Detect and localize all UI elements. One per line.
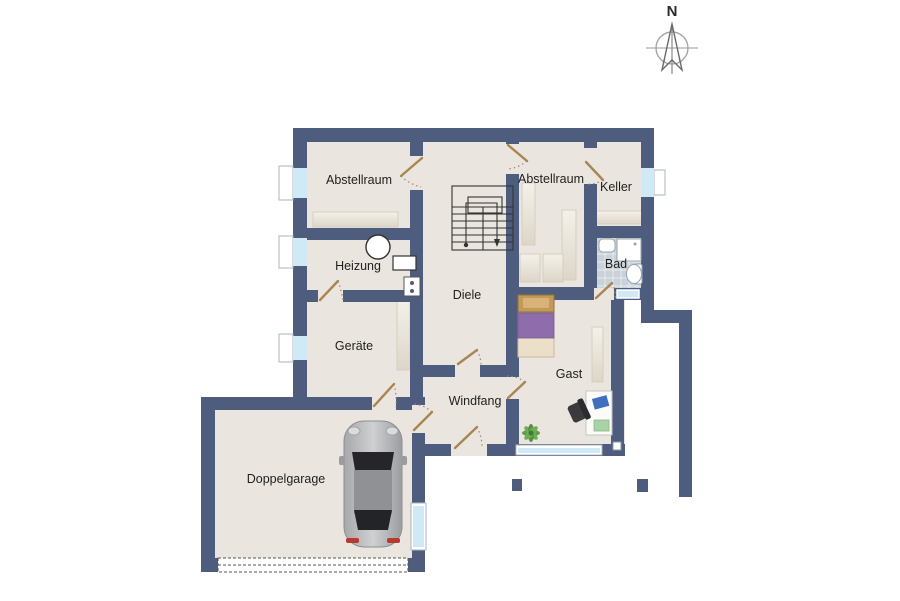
window-gast xyxy=(516,445,602,455)
headlight-left xyxy=(348,427,360,435)
window-abstellraum1 xyxy=(279,166,307,200)
shelf-abstellraum2-left xyxy=(522,183,535,245)
toilet-icon xyxy=(627,264,643,284)
radiator-icon xyxy=(393,256,416,270)
label-windfang: Windfang xyxy=(449,394,502,408)
label-abstellraum1: Abstellraum xyxy=(326,173,392,187)
shelf-abstellraum2-low-a xyxy=(520,254,540,282)
floorplan-page: N Abstellraum Abstellraum Keller Heizung… xyxy=(0,0,900,601)
car-icon xyxy=(339,421,407,547)
window-keller xyxy=(641,168,665,197)
utility-sink-icon xyxy=(404,277,420,296)
porch-pillars xyxy=(512,479,648,492)
corner-marker xyxy=(613,442,621,450)
headlight-right xyxy=(386,427,398,435)
label-heizung: Heizung xyxy=(335,259,381,273)
window-bad xyxy=(617,290,639,298)
label-keller: Keller xyxy=(600,180,632,194)
wall-abst1-bottom xyxy=(293,228,423,240)
shelf-gast xyxy=(592,327,603,382)
wall-top xyxy=(294,128,651,142)
wall-garage-left xyxy=(201,397,215,572)
wall-keller-bottom xyxy=(584,226,651,238)
wall-terrace-right xyxy=(679,310,692,497)
shelf-abstellraum2-low-b xyxy=(543,254,563,282)
north-label: N xyxy=(667,3,678,20)
taillight-left xyxy=(346,538,359,543)
floor-areas xyxy=(208,135,645,565)
wall-gast-right xyxy=(611,293,624,456)
shelf-abstellraum2-right xyxy=(562,210,576,280)
car-roof xyxy=(354,470,392,514)
compass-rose: N xyxy=(646,3,698,74)
boiler-icon xyxy=(366,235,390,259)
label-abstellraum2: Abstellraum xyxy=(518,172,584,186)
shelf-abstellraum1 xyxy=(313,212,398,227)
garage-door xyxy=(218,558,408,572)
mirror-left xyxy=(339,456,345,465)
taillight-right xyxy=(387,538,400,543)
mirror-right xyxy=(401,456,407,465)
pillar-right xyxy=(637,479,648,492)
label-doppelgarage: Doppelgarage xyxy=(247,472,326,486)
desk-pad xyxy=(594,420,609,431)
shelf-geraete xyxy=(397,300,410,370)
window-geraete xyxy=(279,334,307,362)
window-heizung xyxy=(279,236,307,268)
window-garage-side xyxy=(411,503,426,550)
label-diele: Diele xyxy=(453,288,482,302)
sink-icon xyxy=(599,239,615,252)
pillar-left xyxy=(512,479,522,491)
plant-icon xyxy=(522,424,540,442)
label-geraete: Geräte xyxy=(335,339,373,353)
rear-window xyxy=(354,510,392,530)
label-gast: Gast xyxy=(556,367,583,381)
shelf-keller xyxy=(591,211,643,224)
label-bad: Bad xyxy=(605,257,627,271)
bed xyxy=(518,295,554,357)
floorplan-canvas: N Abstellraum Abstellraum Keller Heizung… xyxy=(0,0,900,601)
desk xyxy=(586,391,612,435)
